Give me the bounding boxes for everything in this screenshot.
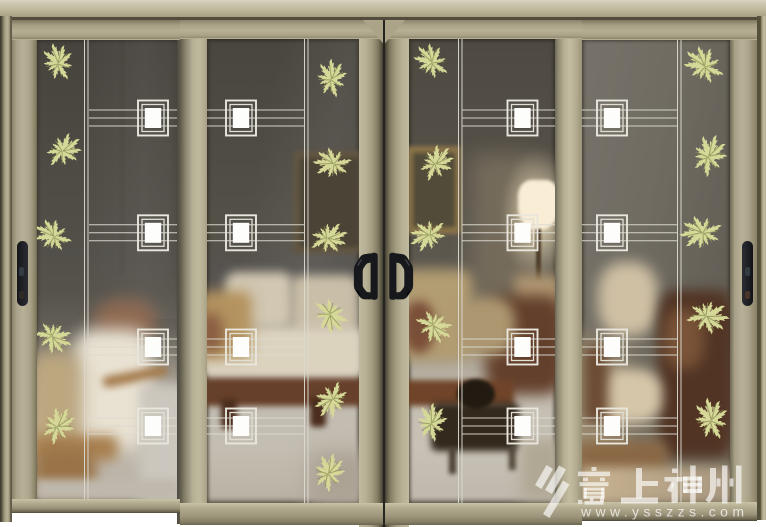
svg-text:www.ysszzs.com: www.ysszzs.com: [580, 504, 748, 520]
